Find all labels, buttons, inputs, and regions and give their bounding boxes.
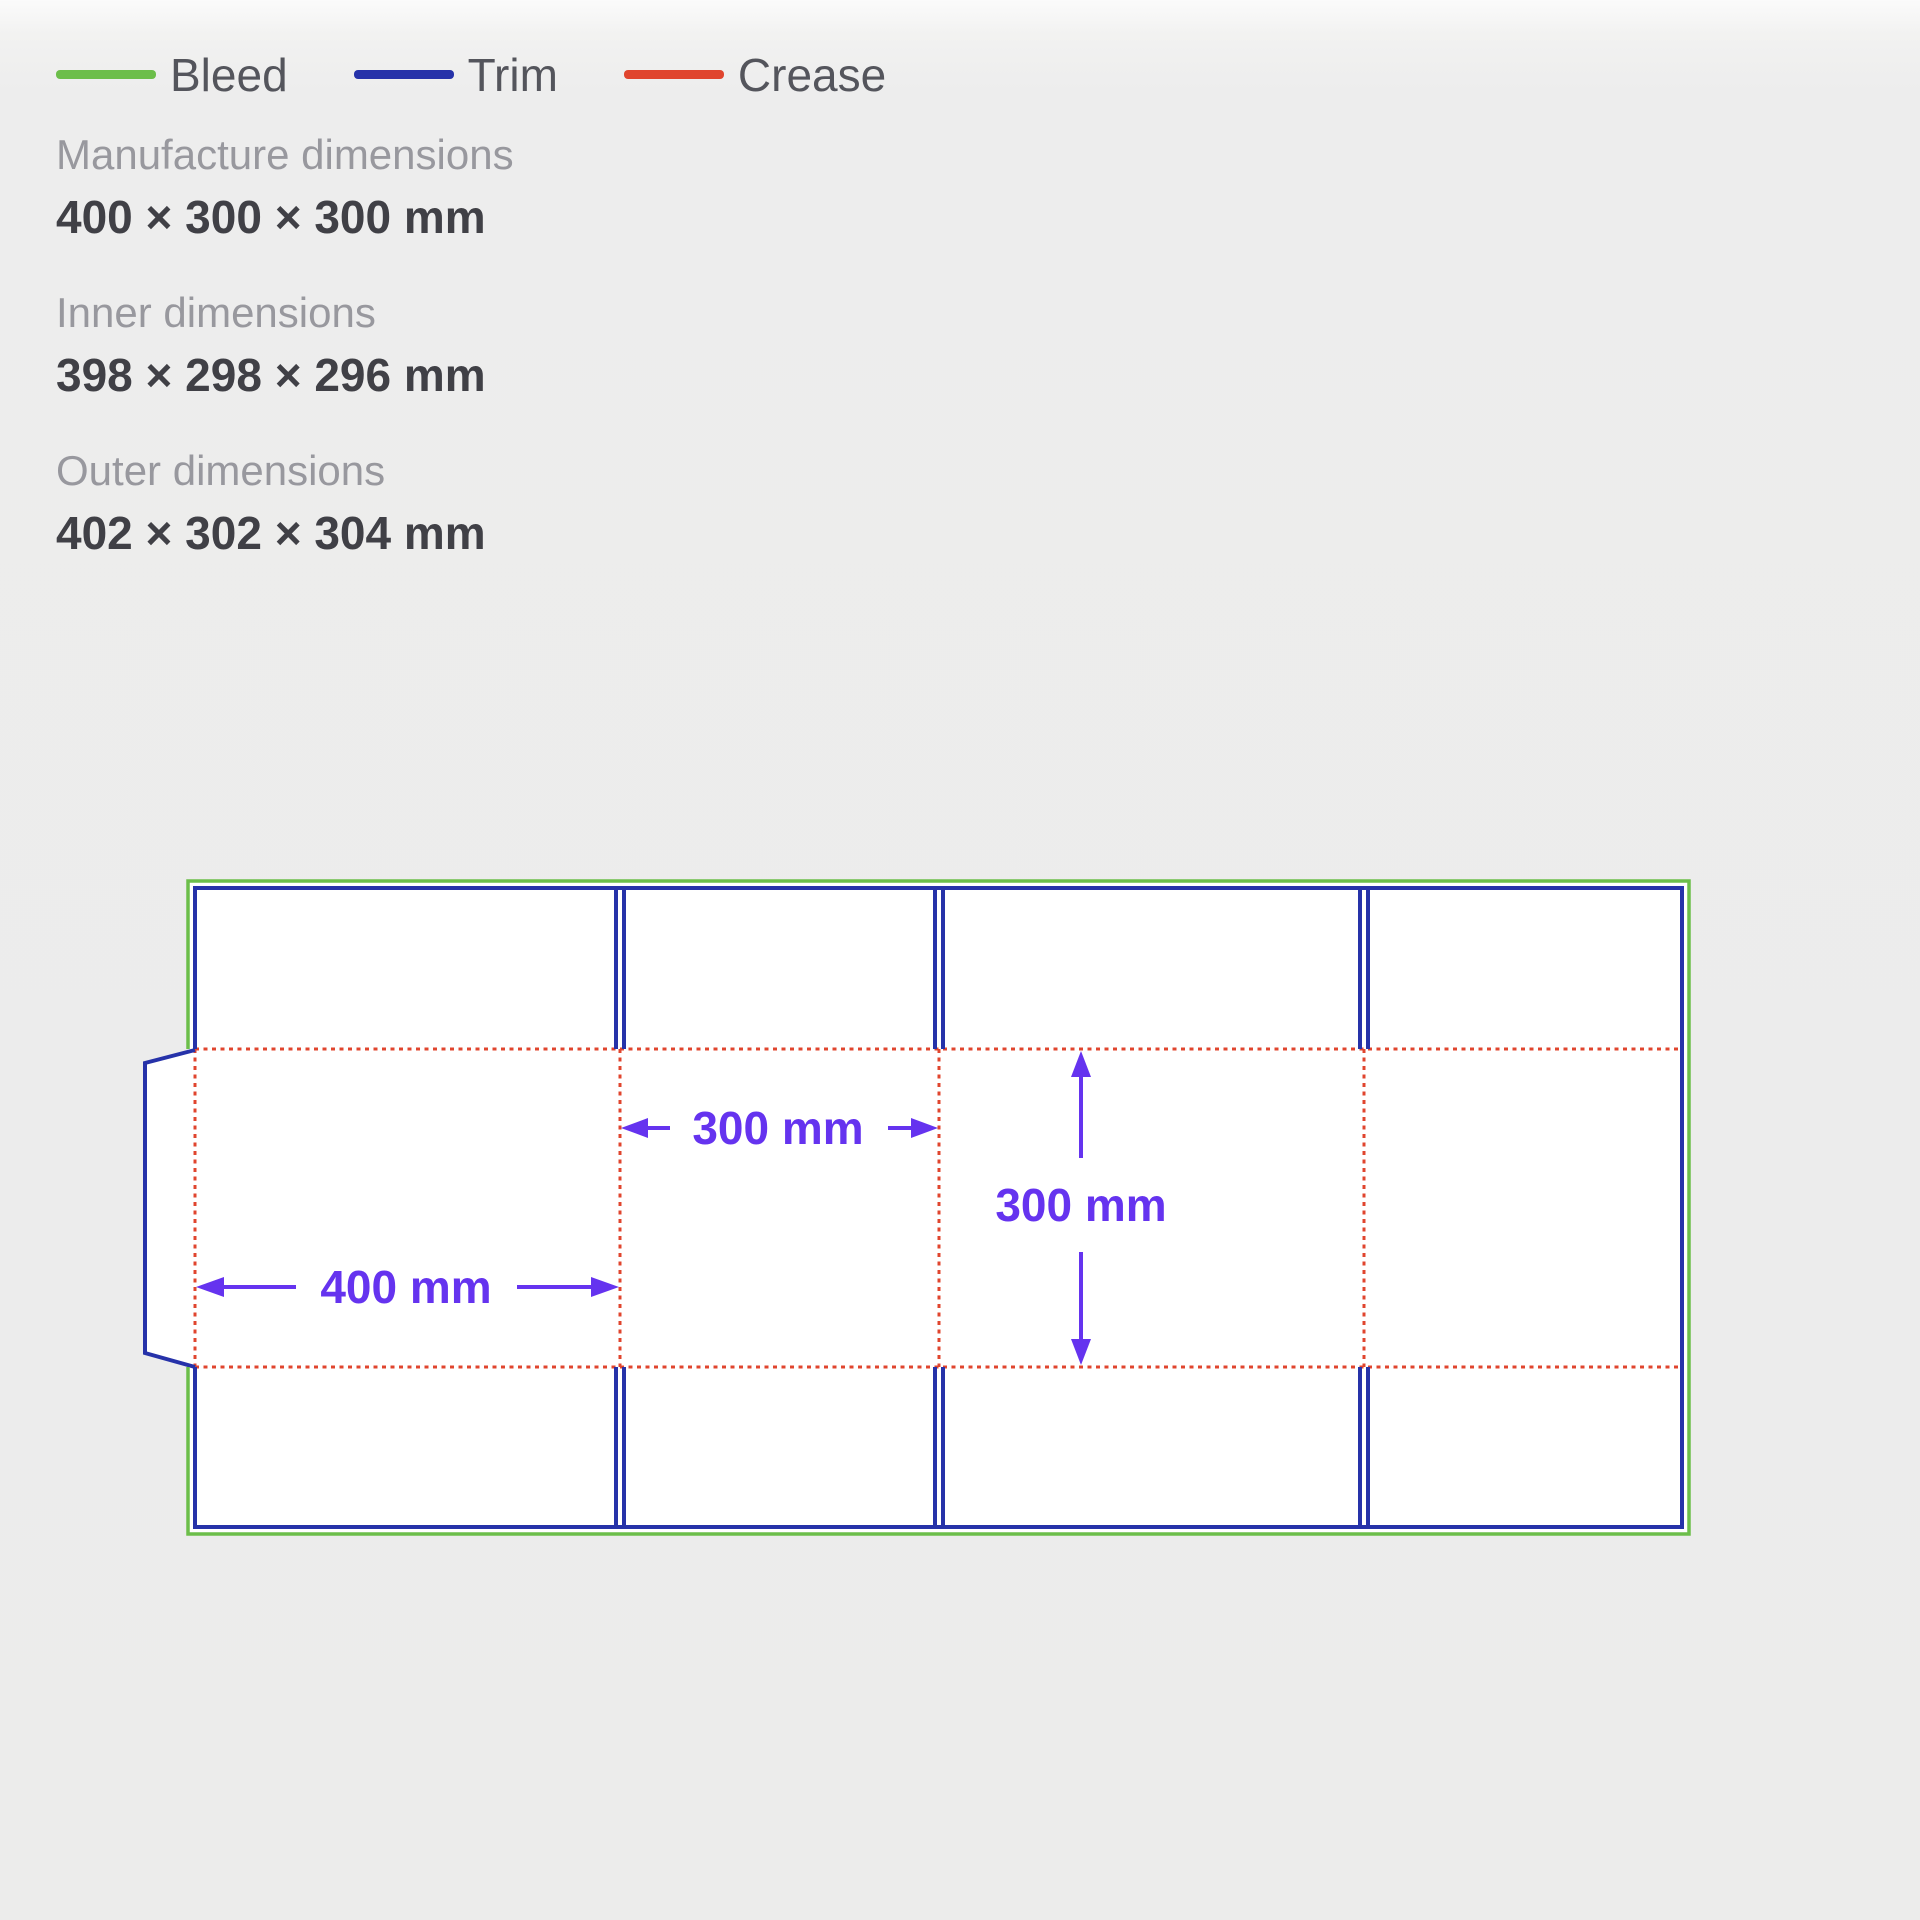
dieline-body-fill xyxy=(188,881,1689,1534)
dieline-diagram: 400 mm 300 mm 300 mm xyxy=(0,0,1920,1920)
width-dimension-label: 400 mm xyxy=(320,1261,491,1313)
depth-dimension-label: 300 mm xyxy=(692,1102,863,1154)
glue-tab-fill xyxy=(145,1050,195,1367)
height-dimension-label: 300 mm xyxy=(995,1179,1166,1231)
dieline-fill xyxy=(145,881,1689,1534)
